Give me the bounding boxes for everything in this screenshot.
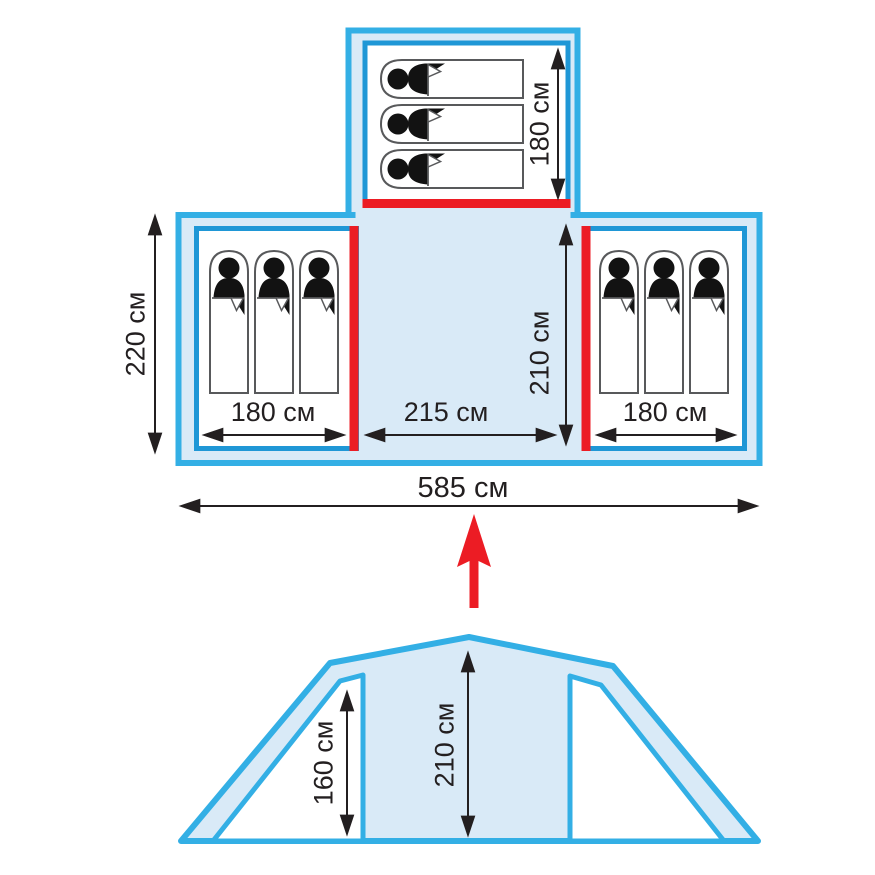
right-room-door-line: [582, 226, 591, 451]
front-elevation: 160 см 210 см: [181, 637, 758, 841]
passage-opening: [356, 208, 571, 223]
sleeping-bag-icon: [600, 251, 638, 393]
dimension-label-side-height: 160 см: [308, 721, 338, 806]
sleeping-bag-icon: [690, 251, 728, 393]
sleeping-bag-icon: [645, 251, 683, 393]
sleeping-bag-icon: [300, 251, 338, 393]
left-cutout: [213, 675, 363, 841]
left-room-door-line: [350, 226, 359, 451]
dimension-label-left-room: 180 см: [231, 397, 316, 427]
tent-diagram: 180 см 220 см 180 см 215 см 180 см 210 с…: [0, 0, 875, 875]
floor-plan: 180 см 220 см 180 см 215 см 180 см 210 с…: [120, 31, 759, 609]
dimension-label-overall-depth: 220 см: [120, 292, 150, 377]
left-room-sleeping-bags: [210, 251, 338, 393]
right-room-sleeping-bags: [600, 251, 728, 393]
top-room-door-line: [363, 199, 571, 208]
sleeping-bag-icon: [381, 60, 523, 98]
dimension-label-center-width: 215 см: [404, 397, 489, 427]
dimension-label-top-room: 180 см: [524, 82, 554, 167]
sleeping-bag-icon: [381, 105, 523, 143]
right-cutout: [570, 676, 724, 841]
top-room-sleeping-bags: [381, 60, 523, 188]
sleeping-bag-icon: [210, 251, 248, 393]
dimension-label-center-height: 210 см: [429, 703, 459, 788]
entrance-arrow-icon: [457, 514, 491, 608]
dimension-label-center-depth: 210 см: [524, 311, 554, 396]
sleeping-bag-icon: [381, 150, 523, 188]
dimension-label-total-width: 585 см: [418, 472, 509, 504]
dimension-label-right-room: 180 см: [623, 397, 708, 427]
sleeping-bag-icon: [255, 251, 293, 393]
diagram-canvas: 180 см 220 см 180 см 215 см 180 см 210 с…: [0, 0, 875, 875]
